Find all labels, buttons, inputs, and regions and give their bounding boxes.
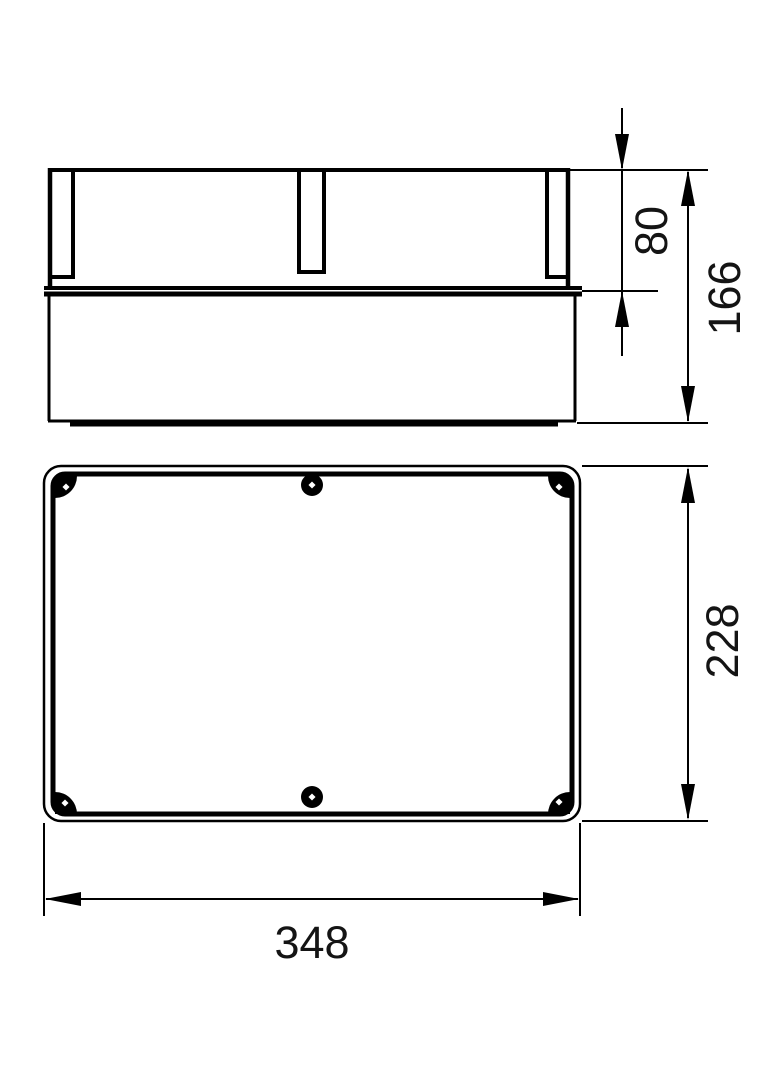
dim-label-lid-height: 80 xyxy=(626,206,677,256)
arrowhead-right-icon xyxy=(543,892,579,906)
dimension-drawing-canvas: 80 166 228 348 xyxy=(0,0,784,1066)
plan-lid-outline xyxy=(53,474,572,814)
dimension-plan-height: 228 xyxy=(582,466,748,821)
plan-view xyxy=(44,466,580,821)
dimension-plan-width: 348 xyxy=(44,823,580,968)
arrowhead-down-icon xyxy=(681,386,695,422)
enclosure-technical-drawing: 80 166 228 348 xyxy=(0,0,784,1066)
side-view xyxy=(44,168,582,424)
arrowhead-down-icon xyxy=(681,784,695,820)
dim-label-plan-width: 348 xyxy=(274,917,349,968)
plan-outer-outline xyxy=(44,466,580,821)
dim-label-plan-height: 228 xyxy=(697,603,748,678)
arrowhead-down-icon xyxy=(615,134,629,170)
dim-label-total-height: 166 xyxy=(699,260,750,335)
